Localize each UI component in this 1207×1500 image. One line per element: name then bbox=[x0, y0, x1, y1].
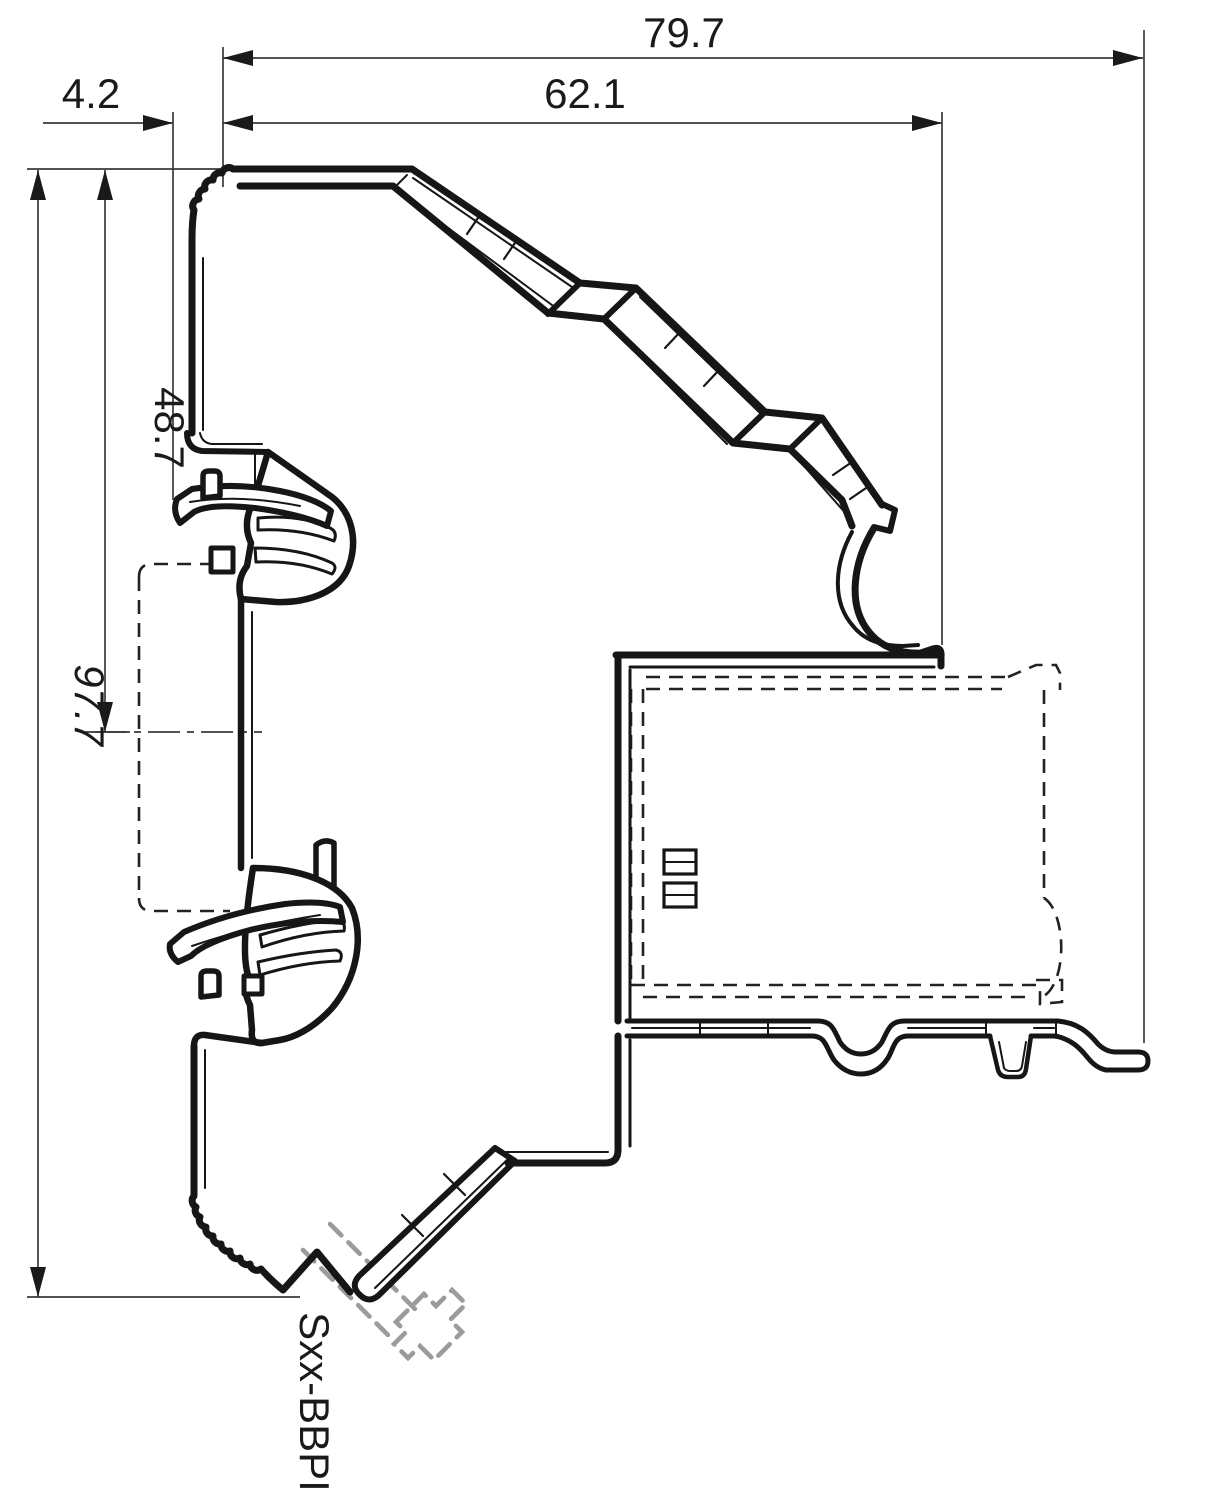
arrow-97-7-up bbox=[30, 170, 46, 200]
roof-hatch-ticks bbox=[467, 215, 869, 499]
dim-label-79-7: 79.7 bbox=[643, 9, 725, 56]
arrow-97-7-down bbox=[30, 1267, 46, 1297]
roof-band-caps bbox=[548, 283, 822, 449]
module-top-notch bbox=[1008, 665, 1060, 690]
part-label: Sxx-BBPI bbox=[291, 1312, 338, 1492]
arrow-4-2-right bbox=[143, 115, 173, 131]
din-clip-lower-claw bbox=[170, 841, 358, 1046]
roof-start-cap bbox=[395, 175, 407, 187]
lower-claw-tab bbox=[201, 971, 219, 997]
bracket-bottom-edge bbox=[627, 1036, 990, 1074]
dim-label-4-2: 4.2 bbox=[62, 70, 120, 117]
bottom-vent-band bbox=[355, 1148, 515, 1300]
drawing-canvas: 79.7 62.1 4.2 48.7 97.7 Sxx-BBPI bbox=[0, 0, 1207, 1500]
upper-claw-tab bbox=[203, 471, 220, 498]
arrow-48-7-up bbox=[97, 170, 113, 200]
arrow-79-7-right bbox=[1113, 50, 1143, 66]
din-clip-upper-claw bbox=[175, 452, 353, 602]
mounting-bracket bbox=[627, 1021, 1148, 1077]
profile-roof bbox=[233, 169, 941, 666]
rail-bottom-edge bbox=[139, 898, 230, 911]
bottom-left-corner bbox=[192, 1046, 350, 1292]
clip-step-top-inner bbox=[200, 433, 262, 444]
arrow-79-7-left bbox=[223, 50, 253, 66]
arrow-62-1-left bbox=[223, 115, 253, 131]
plugin-module-phantom bbox=[631, 665, 1062, 1004]
roof-inner-edge bbox=[240, 186, 852, 526]
scallop-top-left bbox=[192, 168, 233, 433]
rear-curve-inner bbox=[838, 532, 918, 646]
scallop-bottom-left bbox=[192, 1046, 350, 1292]
module-connector-symbol bbox=[664, 850, 696, 907]
rear-shoulder bbox=[506, 655, 940, 1163]
roof-outer-edge bbox=[233, 169, 882, 505]
front-wall-scallops bbox=[187, 168, 268, 452]
bottom-band-liner bbox=[375, 1158, 509, 1288]
bracket-hook-tip bbox=[1136, 1052, 1148, 1070]
bottom-band-outline bbox=[355, 1148, 515, 1300]
technical-drawing: 79.7 62.1 4.2 48.7 97.7 Sxx-BBPI bbox=[0, 0, 1207, 1500]
clip-step-top bbox=[187, 433, 268, 452]
device-profile bbox=[170, 168, 1148, 1300]
din-rail-phantom bbox=[139, 564, 230, 911]
upper-claw-notch bbox=[211, 548, 233, 572]
bracket-foot-liner bbox=[999, 1042, 1026, 1071]
dim-label-62-1: 62.1 bbox=[544, 70, 626, 117]
arrow-62-1-right bbox=[912, 115, 942, 131]
dim-label-97-7: 97.7 bbox=[66, 664, 113, 747]
dim-label-48-7: 48.7 bbox=[146, 387, 193, 469]
lower-claw-foot bbox=[244, 976, 262, 994]
